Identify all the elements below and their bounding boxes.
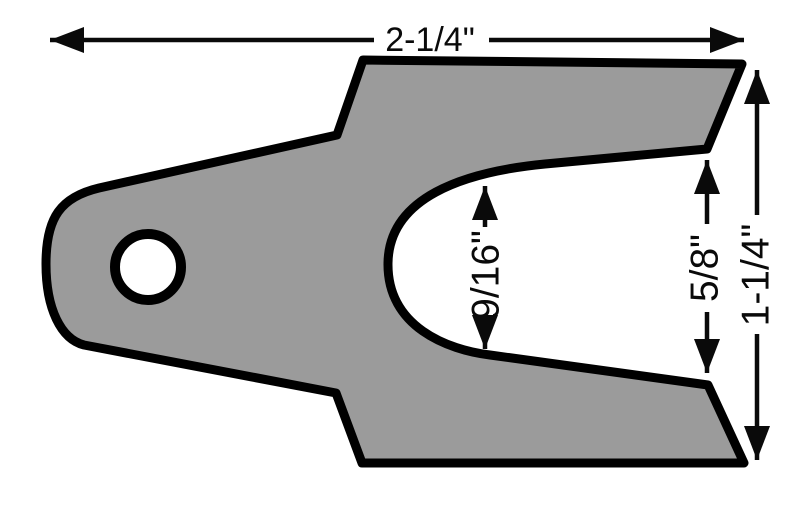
shim-technical-drawing: 2-1/4" 9/16" 5/8" 1-1/4" — [0, 0, 800, 505]
dimension-slot-opening-width: 5/8" — [684, 160, 727, 373]
mounting-hole — [115, 234, 181, 300]
shim-diagram-canvas: 2-1/4" 9/16" 5/8" 1-1/4" — [0, 0, 800, 505]
dimension-label-overall-width: 2-1/4" — [385, 21, 475, 59]
dimension-slot-inner-width: 9/16" — [465, 186, 508, 349]
dimension-label-slot-opening-width: 5/8" — [684, 234, 727, 302]
dimension-label-overall-height: 1-1/4" — [735, 224, 778, 327]
dimension-overall-height: 1-1/4" — [735, 70, 778, 460]
dimension-label-slot-inner-width: 9/16" — [465, 230, 508, 320]
dimension-overall-width: 2-1/4" — [50, 21, 744, 59]
